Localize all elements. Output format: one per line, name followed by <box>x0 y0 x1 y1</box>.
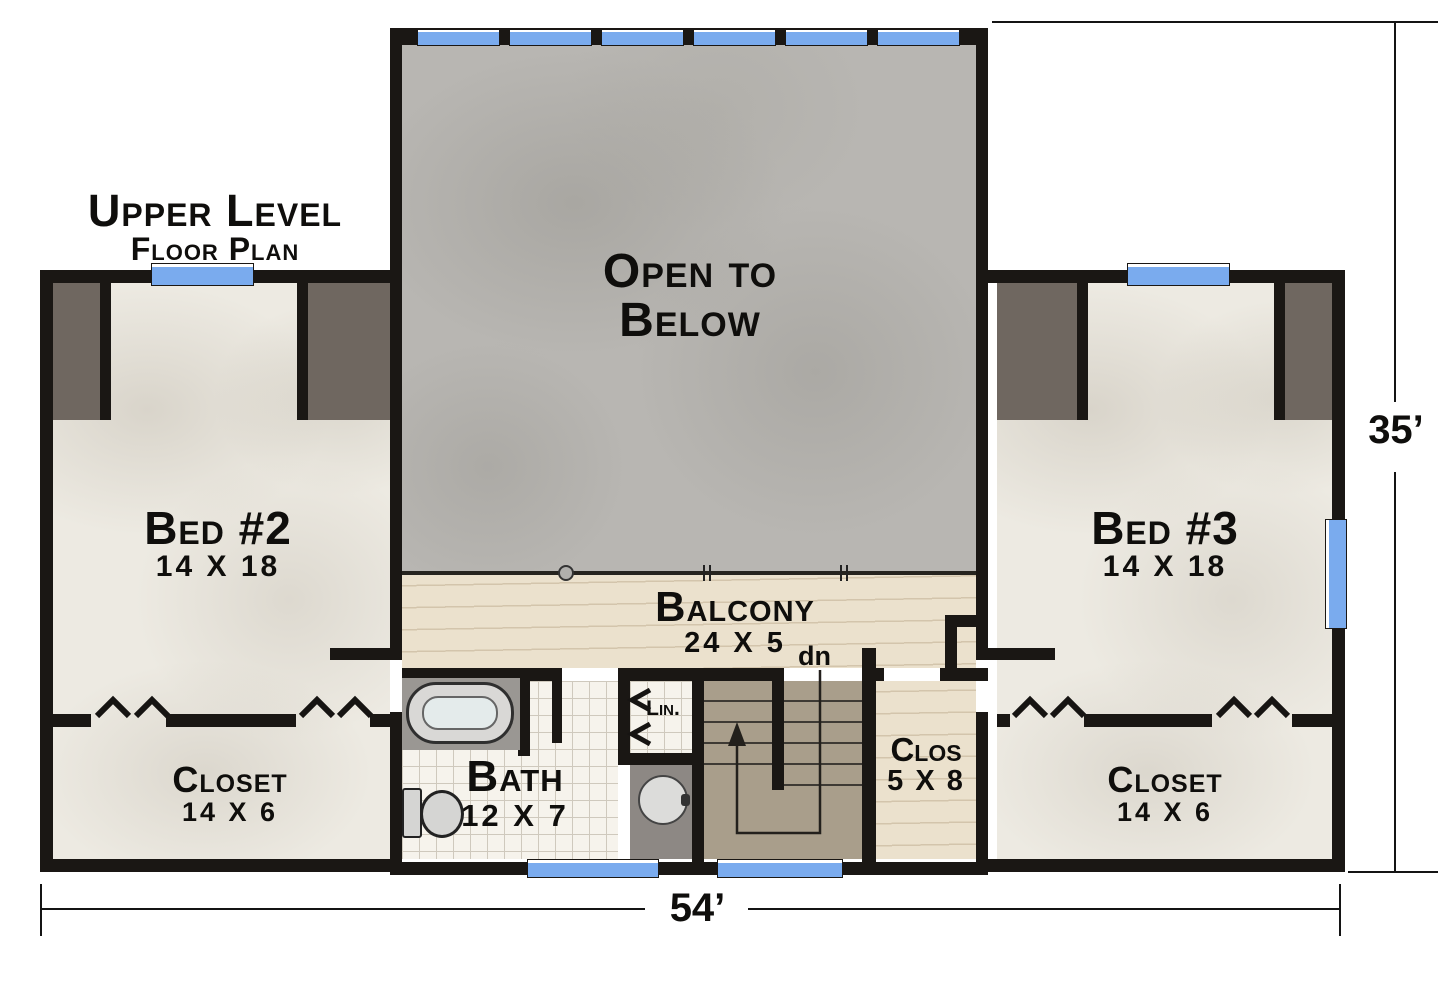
closet-door-chevrons-right <box>1014 700 1288 716</box>
balcony-rail-posts <box>559 565 847 581</box>
annotations-overlay <box>0 0 1440 981</box>
linen-door-chevrons <box>632 690 650 744</box>
floor-plan: Bed #2 14 X 18 Closet 14 X 6 Bed #3 14 X… <box>0 0 1440 981</box>
stair-direction-arrow <box>728 670 820 833</box>
closet-door-chevrons-left <box>97 700 371 716</box>
